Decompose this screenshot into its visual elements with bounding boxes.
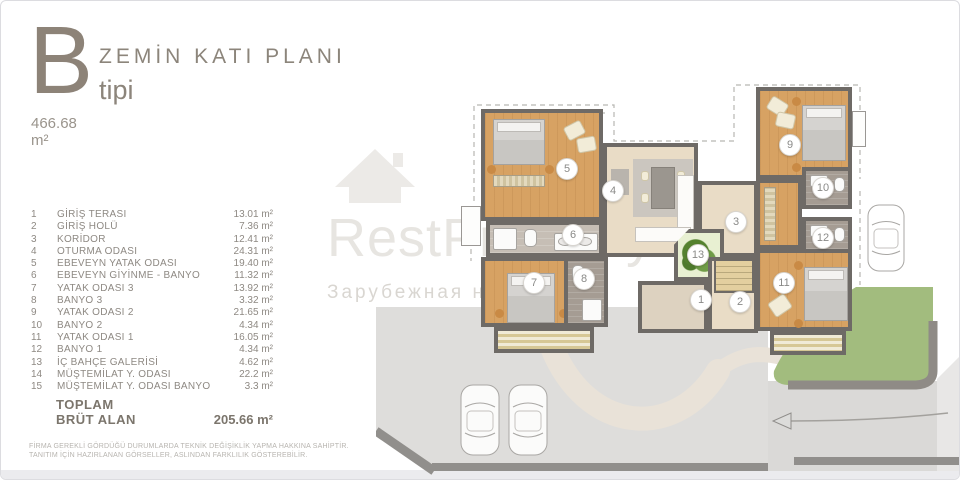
legend-row: 6EBEVEYN GİYİNME - BANYO11.32 m² [31,270,273,282]
lamp [487,165,496,174]
plan-marker-10: 10 [812,177,834,199]
right-wing-hall [756,179,802,249]
toilet [834,227,845,242]
dining-chair [641,193,649,203]
plan-marker-5: 5 [556,158,578,180]
plan-marker-4: 4 [602,180,624,202]
bed [804,267,848,321]
floor-plan-page: RestProperty Зарубежная недви B ZEMİN KA… [0,0,960,480]
car-top-view [461,385,499,455]
room-number: 9 [31,307,57,319]
type-letter: B [29,15,93,107]
room-number: 3 [31,234,57,246]
room-area: 3.3 m² [215,381,273,393]
toilet [834,177,845,192]
room-area: 13.01 m² [215,209,273,221]
disclaimer-line-1: FİRMA GEREKLİ GÖRDÜĞÜ DURUMLARDA TEKNİK … [29,442,349,451]
room-number: 15 [31,381,57,393]
plan-marker-13: 13 [687,244,709,266]
room-area: 3.32 m² [215,295,273,307]
curb [794,457,960,465]
room-name: MÜŞTEMİLAT Y. ODASI BANYO [57,381,215,393]
room-area: 22.2 m² [215,369,273,381]
blanket [508,296,554,322]
room-area: 12.41 m² [215,234,273,246]
room-number: 5 [31,258,57,270]
exterior-unit [461,206,481,246]
room-bedroom-1 [756,249,852,331]
legend-row: 1GİRİŞ TERASI13.01 m² [31,209,273,221]
lamp [495,309,504,318]
room-area: 11.32 m² [215,270,273,282]
legend-row: 4OTURMA ODASI24.31 m² [31,246,273,258]
armchair [576,135,597,153]
terrace [770,331,846,355]
type-label: tipi [99,75,134,106]
room-name: İÇ BAHÇE GALERİSİ [57,357,215,369]
stairs [714,259,754,293]
total-area-block: TOPLAM BRÜT ALAN 205.66 m² [31,397,273,427]
room-name: OTURMA ODASI [57,246,215,258]
room-area: 13.92 m² [215,283,273,295]
room-area: 16.05 m² [215,332,273,344]
dresser [493,175,545,187]
shower [493,228,517,250]
legend-row: 15MÜŞTEMİLAT Y. ODASI BANYO3.3 m² [31,381,273,393]
room-area: 7.36 m² [215,221,273,233]
plan-marker-1: 1 [690,289,712,311]
room-number: 1 [31,209,57,221]
room-area: 24.31 m² [215,246,273,258]
car-top-view [868,205,904,271]
room-name: YATAK ODASI 3 [57,283,215,295]
blanket [803,130,845,160]
room-number: 2 [31,221,57,233]
disclaimer: FİRMA GEREKLİ GÖRDÜĞÜ DURUMLARDA TEKNİK … [29,442,349,460]
dining-chair [641,171,649,181]
plan-marker-3: 3 [725,211,747,233]
room-master-bedroom [481,109,603,221]
wall-shadow [937,355,960,471]
toilet [524,229,537,247]
floor-plan: 1 2 3 4 5 6 7 8 9 10 11 12 13 [376,83,960,480]
bed [493,119,545,165]
room-area: 4.34 m² [215,344,273,356]
room-number: 11 [31,332,57,344]
total-label-1: TOPLAM [56,397,136,412]
room-name: GİRİŞ HOLÜ [57,221,215,233]
lamp [794,319,803,328]
lamp [792,163,801,172]
disclaimer-line-2: TANITIM İÇİN HAZIRLANAN GÖRSELLER, ASLIN… [29,451,349,460]
room-name: BANYO 3 [57,295,215,307]
legend-row: 14MÜŞTEMİLAT Y. ODASI22.2 m² [31,369,273,381]
plan-marker-12: 12 [812,227,834,249]
room-master-bath [486,221,603,257]
plan-marker-9: 9 [779,134,801,156]
lamp [794,261,803,270]
gross-area: 466.68 m² [31,115,93,149]
blanket [494,140,544,164]
room-number: 12 [31,344,57,356]
legend-row: 9YATAK ODASI 221.65 m² [31,307,273,319]
armchair [767,293,793,318]
exterior-unit [852,111,866,147]
legend-row: 12BANYO 14.34 m² [31,344,273,356]
pillow [806,108,842,118]
terrace [494,327,594,353]
room-number: 8 [31,295,57,307]
car-top-view [509,385,547,455]
room-name: BANYO 2 [57,320,215,332]
lamp [545,165,554,174]
room-number: 13 [31,357,57,369]
shower [582,299,602,321]
room-number: 10 [31,320,57,332]
dining-table [651,167,675,209]
room-area: 4.62 m² [215,357,273,369]
legend-row: 5EBEVEYN YATAK ODASI19.40 m² [31,258,273,270]
plan-marker-8: 8 [573,268,595,290]
plan-marker-6: 6 [562,224,584,246]
bed [802,105,846,161]
total-value: 205.66 m² [214,412,273,427]
room-number: 4 [31,246,57,258]
wardrobe [764,187,776,241]
plan-marker-11: 11 [773,272,795,294]
pillow [808,270,844,280]
lamp [792,97,801,106]
pillow [497,122,541,132]
room-number: 14 [31,369,57,381]
room-name: EBEVEYN GİYİNME - BANYO [57,270,215,282]
room-name: YATAK ODASI 2 [57,307,215,319]
blanket [805,291,847,320]
room-name: KORİDOR [57,234,215,246]
room-name: MÜŞTEMİLAT Y. ODASI [57,369,215,381]
legend-row: 10BANYO 24.34 m² [31,320,273,332]
total-label-2: BRÜT ALAN [56,412,136,427]
total-labels: TOPLAM BRÜT ALAN [56,397,136,427]
legend-row: 8BANYO 33.32 m² [31,295,273,307]
room-number: 6 [31,270,57,282]
room-name: BANYO 1 [57,344,215,356]
legend-row: 13İÇ BAHÇE GALERİSİ4.62 m² [31,357,273,369]
legend-row: 7YATAK ODASI 313.92 m² [31,283,273,295]
room-name: EBEVEYN YATAK ODASI [57,258,215,270]
room-area: 19.40 m² [215,258,273,270]
room-area: 4.34 m² [215,320,273,332]
plan-marker-2: 2 [729,291,751,313]
room-bedroom-2 [756,87,852,179]
plan-header: B ZEMİN KATI PLANI tipi 466.68 m² [29,15,93,107]
curb [432,463,768,471]
room-name: YATAK ODASI 1 [57,332,215,344]
room-name: GİRİŞ TERASI [57,209,215,221]
room-area: 21.65 m² [215,307,273,319]
armchair [775,111,797,130]
room-legend: 1GİRİŞ TERASI13.01 m² 2GİRİŞ HOLÜ7.36 m²… [31,209,273,393]
legend-row: 11YATAK ODASI 116.05 m² [31,332,273,344]
plan-title: ZEMİN KATI PLANI [99,45,346,69]
plan-marker-7: 7 [523,272,545,294]
legend-row: 2GİRİŞ HOLÜ7.36 m² [31,221,273,233]
legend-row: 3KORİDOR12.41 m² [31,234,273,246]
room-number: 7 [31,283,57,295]
